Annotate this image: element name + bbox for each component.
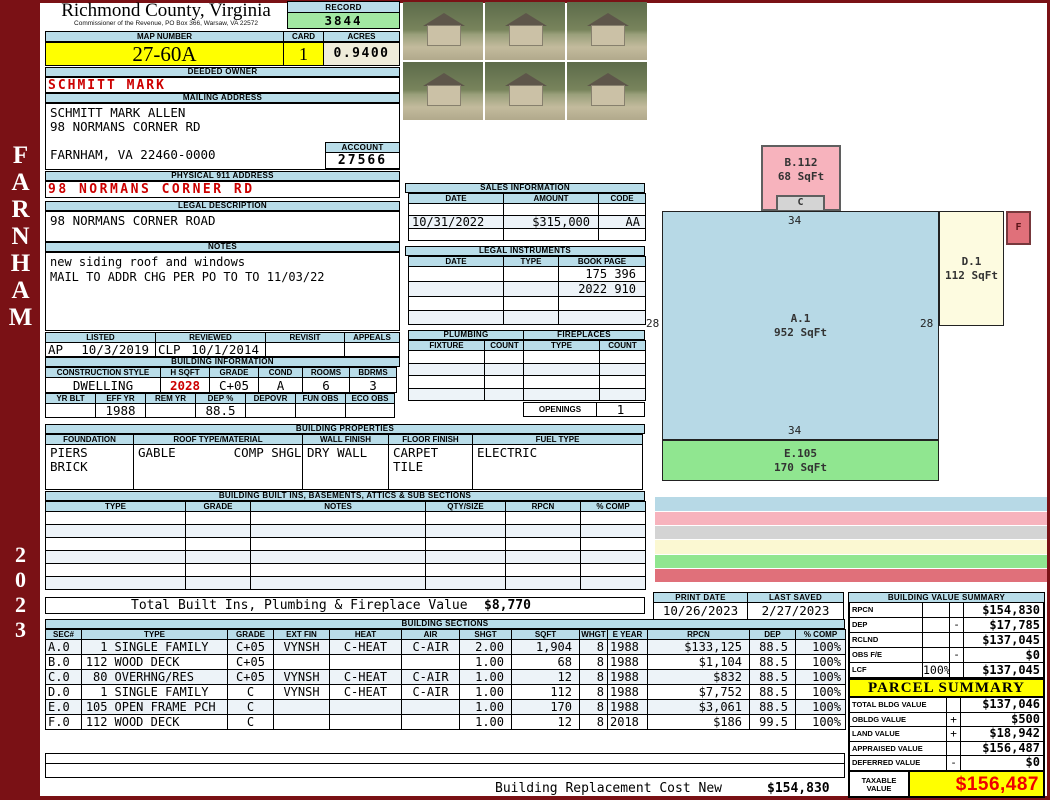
- cell-whgt: 8: [580, 640, 608, 655]
- cell-rpcn: $1,104: [648, 655, 750, 670]
- cell-q: [426, 577, 506, 590]
- table-row[interactable]: [524, 363, 646, 376]
- card-label: CARD: [283, 31, 324, 42]
- last-saved-value: 2/27/2023: [747, 603, 844, 620]
- cell-date: [409, 229, 504, 241]
- cell-idate: [409, 311, 504, 325]
- cell-value: $154,830: [964, 603, 1043, 617]
- cell-value: $0: [961, 756, 1043, 770]
- cell-qty: 112: [82, 655, 110, 670]
- cell-r: [506, 551, 581, 564]
- sketch-area-a[interactable]: A.1 952 SqFt: [662, 211, 939, 440]
- cell-qty: 80: [82, 670, 110, 685]
- sales-header-row: DATE AMOUNT CODE: [409, 194, 646, 204]
- cell-ext: VYNSH: [274, 670, 330, 685]
- cell-eyear: 2018: [608, 715, 648, 730]
- fireplaces-header: FIREPLACES: [523, 330, 645, 340]
- cell-type: SINGLE FAMILY: [110, 640, 228, 655]
- cell-value: $137,045: [964, 633, 1043, 647]
- physical-911-address-label: PHYSICAL 911 ADDRESS: [45, 171, 400, 181]
- cell-rpcn: $186: [648, 715, 750, 730]
- photo-storage-shed[interactable]: [567, 2, 647, 60]
- table-row[interactable]: B.0112WOOD DECKC+051.006881988$1,10488.5…: [46, 655, 846, 670]
- sketch-dimension-top: 34: [788, 214, 801, 227]
- cell-dep: 88.5: [750, 700, 796, 715]
- cell-pct: [923, 648, 949, 662]
- cell-heat: [330, 715, 402, 730]
- cell-whgt: 8: [580, 655, 608, 670]
- cell-op: -: [947, 756, 960, 770]
- cell-book: [559, 297, 646, 311]
- table-row[interactable]: [46, 538, 646, 551]
- cell-sec: D.0: [46, 685, 82, 700]
- built-ins-header-row: TYPE GRADE NOTES QTY/SIZE RPCN % COMP: [46, 502, 646, 512]
- cell-sec: C.0: [46, 670, 82, 685]
- cell-grade: C+05: [228, 640, 274, 655]
- cell-r: [506, 538, 581, 551]
- commissioner-line: Commissioner of the Revenue, PO Box 366,…: [45, 20, 287, 27]
- cell-air: [402, 700, 460, 715]
- table-row[interactable]: [409, 376, 525, 389]
- cell-label: DEP: [850, 618, 922, 632]
- house-body-shape: [427, 85, 461, 106]
- cell-shgt: 1.00: [460, 670, 512, 685]
- rpcn-label: RPCN: [648, 630, 750, 640]
- cell-fcnt: [600, 363, 646, 376]
- cell-shgt: 1.00: [460, 715, 512, 730]
- map-number-value[interactable]: 27-60A: [45, 42, 284, 66]
- cell-t: [46, 564, 186, 577]
- cell-sec: E.0: [46, 700, 82, 715]
- cell-ftype: [524, 388, 600, 401]
- table-row[interactable]: [46, 564, 646, 577]
- cell-ext: VYNSH: [274, 640, 330, 655]
- text-line: new siding roof and windows: [50, 255, 395, 270]
- cell-book: 2022 910: [559, 282, 646, 297]
- cell-cnt: [485, 376, 525, 389]
- cell-g: [186, 564, 251, 577]
- grade-value: C+05: [209, 377, 259, 393]
- cell-lqty: [695, 511, 743, 525]
- building-sections-header: BUILDING SECTIONS: [45, 619, 845, 629]
- cell-sec: A.0: [46, 640, 82, 655]
- reviewed-value: CLP 10/1/2014: [155, 342, 266, 357]
- deeded-owner-label: DEEDED OWNER: [45, 67, 400, 77]
- cell-lsec: [655, 554, 695, 568]
- cell-sqft: 170: [512, 700, 580, 715]
- cell-value: $500: [961, 713, 1043, 727]
- last-saved-label: LAST SAVED: [747, 592, 844, 603]
- cell-rpcn: $133,125: [648, 640, 750, 655]
- house-body-shape: [591, 85, 625, 106]
- cell-sqft: 68: [512, 655, 580, 670]
- cell-grade: C: [228, 715, 274, 730]
- cell-n: [251, 538, 426, 551]
- cell-comp: 100%: [796, 715, 846, 730]
- cell-grade: C+05: [228, 655, 274, 670]
- cell-qty: 105: [82, 700, 110, 715]
- cell-comp: 100%: [796, 640, 846, 655]
- cell-lcode: [743, 511, 1047, 525]
- fireplaces-header-row: TYPE COUNT: [524, 341, 646, 351]
- map-number-label: MAP NUMBER: [45, 31, 284, 42]
- openings-label: OPENINGS: [523, 402, 597, 417]
- cell-label: OBS F/E: [850, 648, 922, 662]
- cell-lcode: [743, 554, 1047, 568]
- cell-idate: [409, 282, 504, 297]
- instruments-header-row: DATE TYPE BOOK PAGE: [409, 257, 646, 267]
- cell-ext: [274, 715, 330, 730]
- empty-strip: [45, 763, 845, 778]
- cell-lsec: [655, 511, 695, 525]
- cell-grade: C: [228, 700, 274, 715]
- fuel-type-value: ELECTRIC: [472, 444, 643, 490]
- house-body-shape: [591, 25, 625, 46]
- cell-q: [426, 538, 506, 551]
- cell-t: [46, 538, 186, 551]
- cell-dep: 88.5: [750, 685, 796, 700]
- cell-value: $18,942: [961, 727, 1043, 741]
- text-line: MAIL TO ADDR CHG PER PO TO TO 11/03/22: [50, 270, 395, 285]
- cell-ext: VYNSH: [274, 685, 330, 700]
- cell-book: [559, 311, 646, 325]
- sketch-area-e[interactable]: E.105 170 SqFt: [662, 440, 939, 481]
- photo-house-front[interactable]: [403, 2, 483, 60]
- cell-dep: 88.5: [750, 670, 796, 685]
- cell-n: [251, 551, 426, 564]
- sketch-area-e-label: E.105: [663, 447, 938, 461]
- cell-fcnt: [600, 388, 646, 401]
- comp-label: % COMP: [796, 630, 846, 640]
- table-row[interactable]: [655, 511, 1047, 525]
- deeded-owner-value: SCHMITT MARK: [45, 77, 400, 93]
- fixture-label: FIXTURE: [409, 341, 485, 351]
- map-header-row: MAP NUMBER CARD ACRES: [45, 31, 400, 42]
- sketch-dimension-bottom: 34: [788, 424, 801, 437]
- floor-finish-value: CARPETTILE: [388, 444, 473, 490]
- building-information-header: BUILDING INFORMATION: [45, 357, 400, 367]
- parcel-summary-grid: TOTAL BLDG VALUE$137,046OBLDG VALUE+$500…: [848, 698, 1045, 772]
- cell-dep: 88.5: [750, 640, 796, 655]
- listed-date: 10/3/2019: [81, 343, 149, 356]
- cell-itype: [504, 282, 559, 297]
- photo-house-side-porch[interactable]: [485, 62, 565, 120]
- cell-qty: 1: [82, 640, 110, 655]
- cell-itype: [504, 311, 559, 325]
- bi-type-label: TYPE: [46, 502, 186, 512]
- cell-value: $137,046: [961, 698, 1043, 712]
- listed-value: AP 10/3/2019: [45, 342, 156, 357]
- cell-sqft: 1,904: [512, 640, 580, 655]
- building-value-summary-grid: RPCN$154,830DEP-$17,785RCLND$137,045OBS …: [848, 603, 1045, 679]
- house-body-shape: [509, 25, 543, 46]
- cell-c: [581, 538, 646, 551]
- cell-dep: 99.5: [750, 715, 796, 730]
- cell-air: [402, 715, 460, 730]
- roof-material-value: COMP SHGLS: [234, 446, 303, 460]
- sketch-area-d[interactable]: D.1 112 SqFt: [939, 211, 1004, 326]
- fireplace-count-label: COUNT: [600, 341, 646, 351]
- photo-two-story-colonial[interactable]: [567, 62, 647, 120]
- cell-fix: [409, 376, 485, 389]
- cell-idate: [409, 267, 504, 282]
- cell-g: [186, 512, 251, 525]
- cell-code: [599, 204, 646, 216]
- building-properties-header: BUILDING PROPERTIES: [45, 424, 645, 434]
- taxable-value-label: TAXABLE VALUE: [850, 772, 910, 796]
- sales-date-label: DATE: [409, 194, 504, 204]
- cell-code: AA: [599, 216, 646, 229]
- sketch-area-f-label: F: [1008, 213, 1029, 243]
- print-date-box: PRINT DATE 10/26/2023: [653, 592, 748, 620]
- cell-eyear: 1988: [608, 700, 648, 715]
- card-value[interactable]: 1: [283, 42, 324, 66]
- house-body-shape: [509, 85, 543, 106]
- sketch-dimension-left: 28: [646, 317, 659, 330]
- instr-type-label: TYPE: [504, 257, 559, 267]
- cell-eyear: 1988: [608, 685, 648, 700]
- table-row[interactable]: [655, 497, 1047, 511]
- table-row[interactable]: [46, 512, 646, 525]
- cell-r: [506, 564, 581, 577]
- cell-lqty: [695, 568, 743, 582]
- yrblt-value: [45, 403, 96, 418]
- cell-op: [947, 698, 960, 712]
- cell-label: RPCN: [850, 603, 922, 617]
- cell-pct: [923, 603, 949, 617]
- sketch-area-b-label: B.112: [763, 156, 839, 170]
- built-ins-header: BUILDING BUILT INS, BASEMENTS, ATTICS & …: [45, 491, 645, 501]
- cell-comp: 100%: [796, 685, 846, 700]
- ecoobs-value: [345, 403, 395, 418]
- cell-fix: [409, 363, 485, 376]
- table-row[interactable]: [409, 229, 646, 241]
- table-row[interactable]: 2022 910: [409, 282, 646, 297]
- acres-value: 0.9400: [323, 42, 400, 66]
- cell-rpcn: $832: [648, 670, 750, 685]
- plumbing-header: PLUMBING: [408, 330, 524, 340]
- table-row[interactable]: [524, 351, 646, 364]
- cell-lsec: [655, 568, 695, 582]
- cell-sec: B.0: [46, 655, 82, 670]
- cell-cnt: [485, 388, 525, 401]
- table-row[interactable]: C.080OVERHNG/RESC+05VYNSHC-HEATC-AIR1.00…: [46, 670, 846, 685]
- cell-air: C-AIR: [402, 670, 460, 685]
- fixture-count-label: COUNT: [485, 341, 525, 351]
- cell-lsec: [655, 497, 695, 511]
- print-date-label: PRINT DATE: [653, 592, 748, 603]
- table-row[interactable]: A.01SINGLE FAMILYC+05VYNSHC-HEATC-AIR2.0…: [46, 640, 846, 655]
- cell-lsec: [655, 540, 695, 554]
- table-row[interactable]: 175 396: [409, 267, 646, 282]
- cell-cnt: [485, 363, 525, 376]
- air-label: AIR: [402, 630, 460, 640]
- account-value: 27566: [325, 153, 400, 169]
- record-value: 3844: [287, 13, 400, 29]
- cell-type: WOOD DECK: [110, 655, 228, 670]
- table-row[interactable]: [655, 554, 1047, 568]
- table-row[interactable]: [524, 376, 646, 389]
- table-row[interactable]: [46, 577, 646, 590]
- cell-q: [426, 551, 506, 564]
- eyear-label: E YEAR: [608, 630, 648, 640]
- table-row[interactable]: [46, 551, 646, 564]
- table-row[interactable]: [409, 204, 646, 216]
- cell-c: [581, 577, 646, 590]
- cell-fix: [409, 351, 485, 364]
- cell-air: C-AIR: [402, 685, 460, 700]
- cell-lqty: [695, 526, 743, 540]
- sec-label: SEC#: [46, 630, 82, 640]
- cell-whgt: 8: [580, 670, 608, 685]
- table-row[interactable]: E.0105OPEN FRAME PCHC1.0017081988$3,0618…: [46, 700, 846, 715]
- cell-label: RCLND: [850, 633, 922, 647]
- photo-deck-closeup[interactable]: [403, 62, 483, 120]
- building-sections-header-row: SEC# TYPE GRADE EXT FIN HEAT AIR SHGT SQ…: [46, 630, 846, 640]
- cell-comp: 100%: [796, 670, 846, 685]
- cell-op: -: [950, 618, 963, 632]
- cell-n: [251, 577, 426, 590]
- cell-type: OPEN FRAME PCH: [110, 700, 228, 715]
- building-properties-value-row: PIERSBRICK GABLE COMP SHGLS DRY WALL CAR…: [45, 444, 645, 490]
- funobs-value: [295, 403, 346, 418]
- cell-op: +: [947, 727, 960, 741]
- table-row[interactable]: [655, 540, 1047, 554]
- cell-q: [426, 525, 506, 538]
- text-line: CARPET: [393, 446, 468, 460]
- mailing-address-label: MAILING ADDRESS: [45, 93, 400, 103]
- wall-finish-value: DRY WALL: [302, 444, 389, 490]
- cell-lcode: [743, 540, 1047, 554]
- cell-t: [46, 551, 186, 564]
- cell-c: [581, 551, 646, 564]
- cell-sqft: 112: [512, 685, 580, 700]
- table-row[interactable]: [409, 311, 646, 325]
- table-row[interactable]: [655, 526, 1047, 540]
- cell-fcnt: [600, 376, 646, 389]
- text-line: TILE: [393, 460, 468, 474]
- sketch-area-a-sqft: 952 SqFt: [663, 326, 938, 340]
- plumbing-table: FIXTURE COUNT: [408, 340, 525, 401]
- cell-heat: C-HEAT: [330, 670, 402, 685]
- building-info-value-row1: DWELLING 2028 C+05 A 6 3: [45, 377, 400, 393]
- depovr-value: [245, 403, 296, 418]
- cond-value: A: [258, 377, 303, 393]
- table-row[interactable]: [409, 351, 525, 364]
- cell-label: LAND VALUE: [850, 727, 946, 741]
- table-row[interactable]: [46, 525, 646, 538]
- openings-row: OPENINGS 1: [523, 402, 645, 417]
- cell-sqft: 12: [512, 670, 580, 685]
- sketch-area-c[interactable]: C: [776, 195, 825, 212]
- cell-lcode: [743, 497, 1047, 511]
- cell-rpcn: $3,061: [648, 700, 750, 715]
- cell-label: APPRAISED VALUE: [850, 742, 946, 756]
- cell-cnt: [485, 351, 525, 364]
- physical-911-address-value: 98 NORMANS CORNER RD: [45, 181, 400, 198]
- bi-qty-label: QTY/SIZE: [426, 502, 506, 512]
- bi-notes-label: NOTES: [251, 502, 426, 512]
- instr-date-label: DATE: [409, 257, 504, 267]
- replacement-cost-label: Building Replacement Cost New: [495, 781, 722, 797]
- bdrms-value: 3: [349, 377, 397, 393]
- sales-table: DATE AMOUNT CODE 10/31/2022$315,000AA: [408, 193, 646, 241]
- table-row[interactable]: D.01SINGLE FAMILYCVYNSHC-HEATC-AIR1.0011…: [46, 685, 846, 700]
- cell-itype: [504, 267, 559, 282]
- cell-t: [46, 512, 186, 525]
- text-line: 98 NORMANS CORNER RD: [50, 120, 395, 134]
- openings-value: 1: [596, 402, 645, 417]
- sketch-area-d-label: D.1: [940, 255, 1003, 269]
- cell-label: TOTAL BLDG VALUE: [850, 698, 946, 712]
- reviewed-code: CLP: [158, 343, 181, 356]
- account-box: ACCOUNT 27566: [325, 142, 400, 169]
- cell-heat: [330, 655, 402, 670]
- sketch-area-c-label: C: [778, 197, 823, 209]
- cell-ext: [274, 655, 330, 670]
- map-value-row: 27-60A 1 0.9400: [45, 42, 400, 66]
- building-info-value-row2: 1988 88.5: [45, 403, 400, 418]
- cell-g: [186, 538, 251, 551]
- record-label: RECORD: [287, 1, 400, 13]
- cell-shgt: 2.00: [460, 640, 512, 655]
- visits-value-row: AP 10/3/2019 CLP 10/1/2014: [45, 342, 400, 357]
- cell-heat: [330, 700, 402, 715]
- table-row[interactable]: 10/31/2022$315,000AA: [409, 216, 646, 229]
- cell-shgt: 1.00: [460, 655, 512, 670]
- cell-ftype: [524, 376, 600, 389]
- account-label: ACCOUNT: [325, 142, 400, 153]
- building-value-summary: BUILDING VALUE SUMMARY RPCN$154,830DEP-$…: [848, 592, 1045, 679]
- building-sections-table: SEC# TYPE GRADE EXT FIN HEAT AIR SHGT SQ…: [45, 629, 846, 730]
- table-row[interactable]: [409, 388, 525, 401]
- cell-shgt: 1.00: [460, 685, 512, 700]
- cell-g: [186, 577, 251, 590]
- cell-value: $17,785: [964, 618, 1043, 632]
- cell-amount: [504, 229, 599, 241]
- bi-rpcn-label: RPCN: [506, 502, 581, 512]
- table-row[interactable]: F.0112WOOD DECKC1.001282018$18699.5100%: [46, 715, 846, 730]
- cell-c: [581, 512, 646, 525]
- cell-itype: [504, 297, 559, 311]
- sketch-area-f[interactable]: F: [1006, 211, 1031, 245]
- parcel-summary: PARCEL SUMMARY TOTAL BLDG VALUE$137,046O…: [848, 678, 1045, 798]
- parcel-summary-header: PARCEL SUMMARY: [848, 678, 1045, 698]
- cell-op: +: [947, 713, 960, 727]
- last-saved-box: LAST SAVED 2/27/2023: [747, 592, 844, 620]
- cell-value: $137,045: [964, 663, 1043, 677]
- bi-grade-label: GRADE: [186, 502, 251, 512]
- total-built-ins-value: $8,770: [484, 598, 531, 613]
- cell-op: [947, 742, 960, 756]
- table-row[interactable]: [524, 388, 646, 401]
- table-row[interactable]: [409, 363, 525, 376]
- cell-pct: [923, 633, 949, 647]
- table-row[interactable]: [409, 297, 646, 311]
- table-row[interactable]: [655, 568, 1047, 582]
- fireplace-type-label: TYPE: [524, 341, 600, 351]
- cell-op: [950, 633, 963, 647]
- photo-tall-house-side[interactable]: [485, 2, 565, 60]
- extfin-label: EXT FIN: [274, 630, 330, 640]
- cell-value: $0: [964, 648, 1043, 662]
- cell-eyear: 1988: [608, 640, 648, 655]
- acres-label: ACRES: [323, 31, 400, 42]
- district-label: FARNHAM: [5, 142, 35, 331]
- cell-lqty: [695, 554, 743, 568]
- cell-fix: [409, 388, 485, 401]
- cell-type: SINGLE FAMILY: [110, 685, 228, 700]
